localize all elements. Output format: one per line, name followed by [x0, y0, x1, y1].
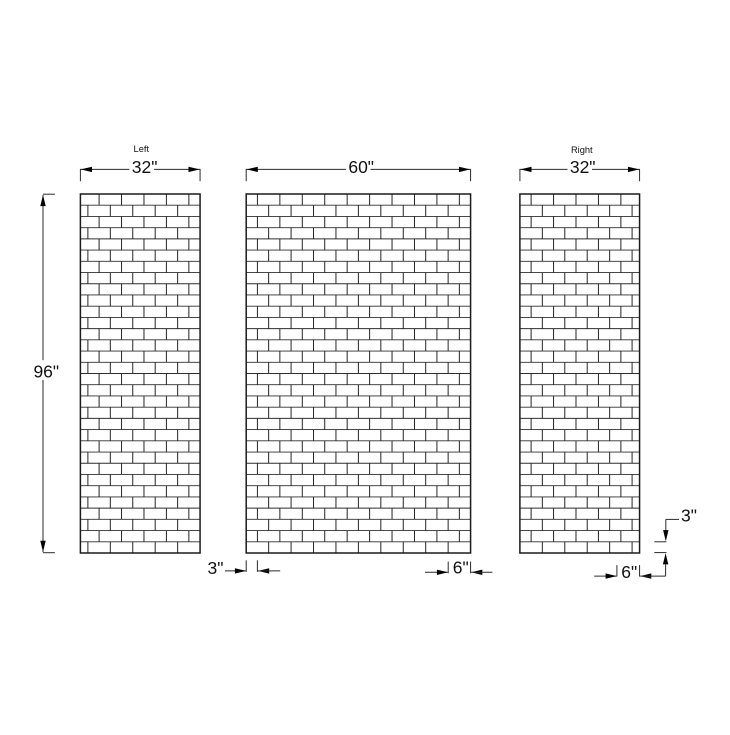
svg-text:3": 3": [681, 505, 697, 525]
svg-text:96": 96": [33, 361, 59, 381]
svg-text:6": 6": [453, 558, 469, 578]
svg-text:60": 60": [348, 157, 374, 177]
svg-text:3": 3": [208, 558, 224, 578]
svg-text:Left: Left: [134, 144, 150, 154]
svg-text:6": 6": [621, 562, 637, 582]
svg-text:Right: Right: [571, 145, 593, 155]
svg-text:32": 32": [132, 157, 158, 177]
svg-text:32": 32": [570, 157, 596, 177]
